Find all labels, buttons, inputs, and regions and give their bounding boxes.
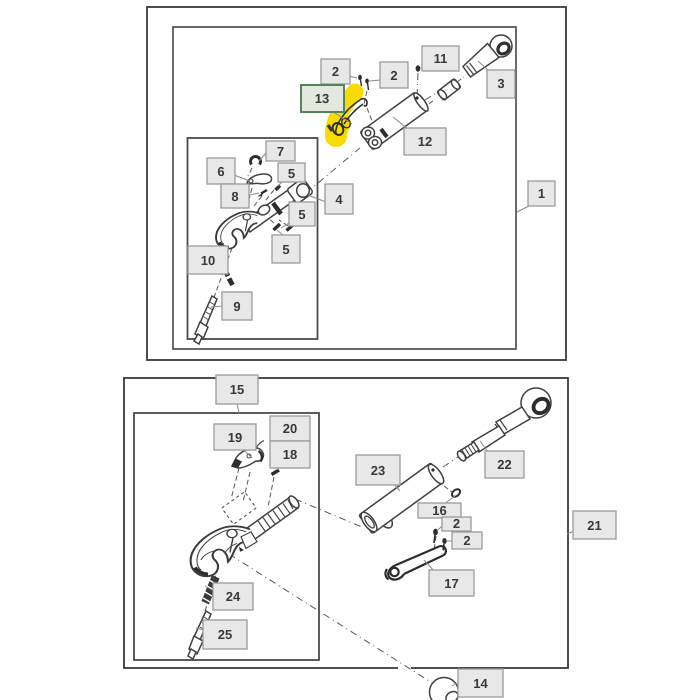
svg-text:3: 3 [497,76,504,91]
svg-text:15: 15 [230,382,244,397]
svg-text:24: 24 [226,589,241,604]
svg-text:23: 23 [371,463,385,478]
svg-text:18: 18 [283,447,297,462]
svg-text:8: 8 [231,189,238,204]
svg-text:2: 2 [463,533,470,548]
svg-text:6: 6 [217,164,224,179]
svg-text:5: 5 [298,207,305,222]
svg-text:19: 19 [228,430,242,445]
svg-text:21: 21 [587,518,601,533]
svg-text:11: 11 [434,51,448,66]
svg-text:2: 2 [453,516,460,531]
svg-text:1: 1 [538,186,545,201]
svg-text:14: 14 [473,676,488,691]
svg-text:5: 5 [288,166,295,181]
svg-text:25: 25 [218,627,232,642]
svg-text:17: 17 [444,576,458,591]
svg-text:22: 22 [497,457,511,472]
svg-text:9: 9 [233,299,240,314]
svg-text:5: 5 [282,242,289,257]
svg-text:2: 2 [390,68,397,83]
svg-text:2: 2 [332,64,339,79]
svg-text:20: 20 [283,421,297,436]
svg-text:4: 4 [335,192,343,207]
svg-text:10: 10 [201,253,215,268]
svg-text:16: 16 [432,503,446,518]
svg-text:7: 7 [277,144,284,159]
svg-text:13: 13 [315,91,329,106]
svg-text:12: 12 [418,134,432,149]
